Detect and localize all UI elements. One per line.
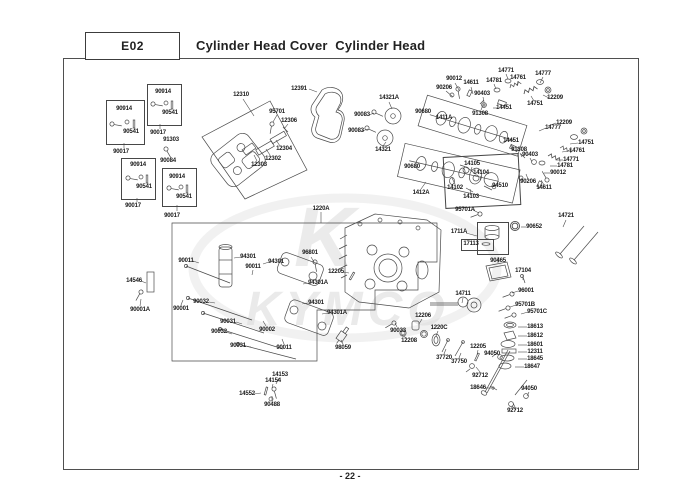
part-label-14611: 14611 xyxy=(536,185,551,191)
part-label-14546: 14546 xyxy=(126,278,142,284)
part-label-14102: 14102 xyxy=(447,185,463,191)
part-label-90001: 90001 xyxy=(173,306,189,312)
part-label-12205: 12205 xyxy=(470,344,486,350)
part-label-1711a: 1711A xyxy=(451,229,467,235)
part-label-14777: 14777 xyxy=(545,125,561,131)
part-label-14751: 14751 xyxy=(578,140,594,146)
part-label-12391: 12391 xyxy=(291,86,307,92)
part-label-94301a: 94301A xyxy=(327,310,347,316)
part-label-90541: 90541 xyxy=(123,129,139,135)
part-label-90011: 90011 xyxy=(276,345,291,351)
part-label-90206: 90206 xyxy=(436,85,452,91)
part-label-90403: 90403 xyxy=(522,152,538,158)
part-label-90032: 90032 xyxy=(193,299,209,305)
part-label-98059: 98059 xyxy=(335,345,351,351)
part-label-12310: 12310 xyxy=(233,92,249,98)
part-label-14451: 14451 xyxy=(496,105,512,111)
part-label-14777: 14777 xyxy=(535,71,551,77)
part-label-14711: 14711 xyxy=(455,291,470,297)
part-label-14781: 14781 xyxy=(486,78,502,84)
part-label-90033: 90033 xyxy=(390,328,406,334)
part-label-1220a: 1220A xyxy=(313,206,330,212)
label-layer: 9091490541900179091490541900179130390084… xyxy=(0,0,700,495)
part-label-96001: 96001 xyxy=(518,288,534,294)
part-label-12304: 12304 xyxy=(276,146,292,152)
part-label-12306: 12306 xyxy=(281,118,297,124)
part-label-90465: 90465 xyxy=(490,258,506,264)
part-label-94301: 94301 xyxy=(268,259,284,265)
part-label-90031: 90031 xyxy=(230,343,246,349)
part-label-1412a: 1412A xyxy=(413,190,430,196)
part-label-96801: 96801 xyxy=(302,250,318,256)
group-box xyxy=(443,153,522,209)
section-code-box: E02 xyxy=(85,32,180,60)
part-label-95701b: 95701B xyxy=(515,302,535,308)
part-label-18612: 18612 xyxy=(527,333,543,339)
part-label-90680: 90680 xyxy=(404,164,420,170)
part-label-14761: 14761 xyxy=(510,75,526,81)
part-label-18601: 18601 xyxy=(527,342,543,348)
part-label-14751: 14751 xyxy=(527,101,543,107)
part-label-90206: 90206 xyxy=(520,179,536,185)
part-label-90403: 90403 xyxy=(474,91,490,97)
part-label-92712: 92712 xyxy=(472,373,488,379)
part-label-14103: 14103 xyxy=(463,194,479,200)
part-label-90914: 90914 xyxy=(155,89,171,95)
part-label-14321a: 14321A xyxy=(379,95,399,101)
part-label-90541: 90541 xyxy=(176,194,192,200)
part-label-14761: 14761 xyxy=(569,148,585,154)
part-label-90083: 90083 xyxy=(354,112,370,118)
part-label-14611: 14611 xyxy=(463,80,478,86)
part-label-1220c: 1220C xyxy=(431,325,448,331)
part-label-90017: 90017 xyxy=(125,203,141,209)
catalog-page: { "header": { "code": "E02", "title": "C… xyxy=(0,0,700,495)
part-label-90488: 90488 xyxy=(264,402,280,408)
part-label-90914: 90914 xyxy=(130,162,146,168)
part-label-14104: 14104 xyxy=(473,170,489,176)
part-label-14771: 14771 xyxy=(498,68,514,74)
part-label-14721: 14721 xyxy=(558,213,574,219)
part-label-91303: 91303 xyxy=(163,137,179,143)
part-label-90541: 90541 xyxy=(162,110,178,116)
section-code: E02 xyxy=(121,39,144,53)
part-label-90031: 90031 xyxy=(220,319,236,325)
part-label-90002: 90002 xyxy=(259,327,275,333)
part-label-95701: 95701 xyxy=(269,109,285,115)
part-label-14105: 14105 xyxy=(464,161,480,167)
part-label-12302: 12302 xyxy=(265,156,281,162)
part-label-90011: 90011 xyxy=(245,264,260,270)
part-label-94050: 94050 xyxy=(521,386,537,392)
part-label-94301a: 94301A xyxy=(308,280,328,286)
part-label-90001a: 90001A xyxy=(130,307,150,313)
page-title: Cylinder Head Cover Cylinder Head xyxy=(196,38,425,53)
part-label-18646: 18646 xyxy=(470,385,486,391)
part-label-12209: 12209 xyxy=(547,95,563,101)
part-label-91308: 91308 xyxy=(472,111,488,117)
part-label-14154: 14154 xyxy=(265,378,281,384)
part-label-12208: 12208 xyxy=(401,338,417,344)
part-label-14781: 14781 xyxy=(557,163,573,169)
part-label-12303: 12303 xyxy=(251,162,267,168)
part-label-90012: 90012 xyxy=(446,76,462,82)
part-label-90017: 90017 xyxy=(113,149,129,155)
part-label-90084: 90084 xyxy=(160,158,176,164)
part-label-1411a: 1411A xyxy=(436,115,452,121)
part-label-95701c: 95701C xyxy=(527,309,547,315)
part-label-90652: 90652 xyxy=(526,224,542,230)
part-label-18645: 18645 xyxy=(527,356,543,362)
part-label-12205: 12205 xyxy=(328,269,344,275)
part-label-94301: 94301 xyxy=(240,254,256,260)
part-label-90032: 90032 xyxy=(211,329,227,335)
part-label-14321: 14321 xyxy=(375,147,391,153)
part-label-90914: 90914 xyxy=(116,106,132,112)
part-label-90017: 90017 xyxy=(150,130,166,136)
part-label-90017: 90017 xyxy=(164,213,180,219)
part-label-37750: 37750 xyxy=(451,359,467,365)
part-label-94050: 94050 xyxy=(484,351,500,357)
part-label-95701a: 95701A xyxy=(455,207,475,213)
part-label-17104: 17104 xyxy=(515,268,531,274)
part-label-90083: 90083 xyxy=(348,128,364,134)
part-label-90914: 90914 xyxy=(169,174,185,180)
part-label-14552: 14552 xyxy=(239,391,255,397)
part-label-90541: 90541 xyxy=(136,184,152,190)
part-label-90011: 90011 xyxy=(178,258,193,264)
part-label-37720: 37720 xyxy=(436,355,452,361)
part-label-92712: 92712 xyxy=(507,408,523,414)
part-label-94510: 94510 xyxy=(492,183,508,189)
part-label-94301: 94301 xyxy=(308,300,324,306)
part-label-90680: 90680 xyxy=(415,109,431,115)
part-label-90012: 90012 xyxy=(550,170,566,176)
page: E02 Cylinder Head Cover Cylinder Head K … xyxy=(0,0,700,495)
part-label-14451: 14451 xyxy=(503,138,519,144)
part-label-12206: 12206 xyxy=(415,313,431,319)
part-label-17113: 17113 xyxy=(463,241,478,247)
part-label-12311: 12311 xyxy=(527,349,542,355)
part-label-18647: 18647 xyxy=(524,364,540,370)
part-label-18613: 18613 xyxy=(527,324,543,330)
